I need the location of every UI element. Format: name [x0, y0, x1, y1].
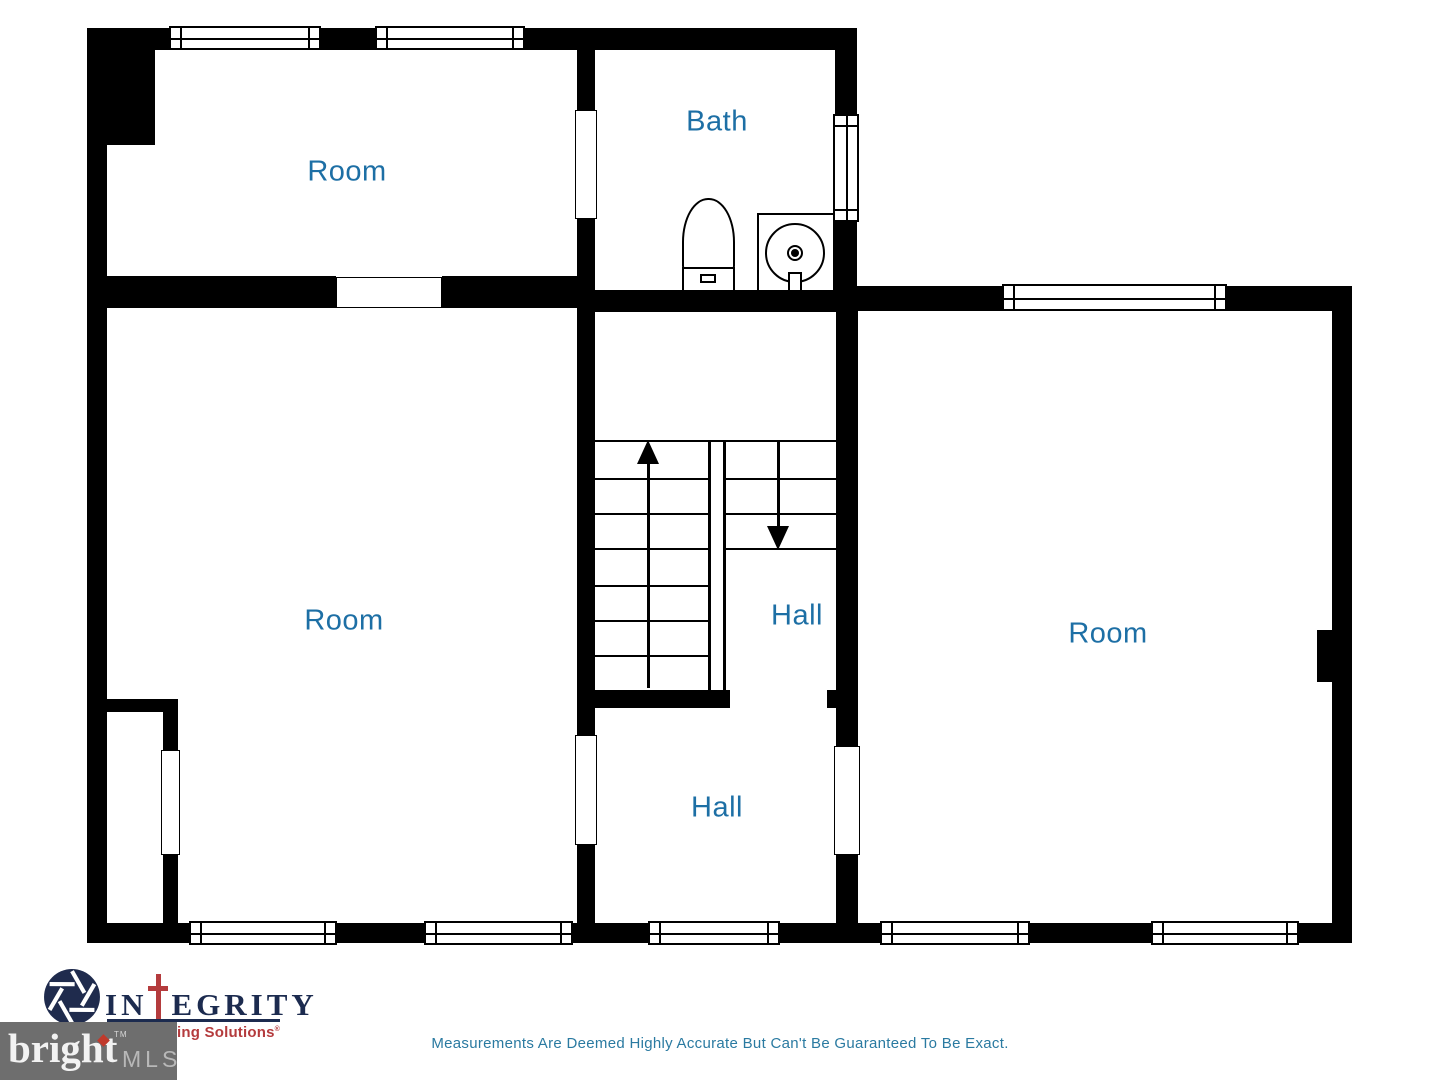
window-bottom-right-1 — [880, 921, 1030, 945]
wall-bottom-seg5 — [1030, 923, 1151, 943]
sink-faucet — [788, 272, 802, 292]
bright-brand-text: bright — [8, 1026, 117, 1071]
door-room-to-room — [336, 277, 442, 308]
stair-step-line — [595, 513, 710, 515]
wall-bottom-seg6 — [1299, 923, 1352, 943]
sink-drain-inner — [791, 249, 799, 257]
label-hall-lower: Hall — [691, 792, 743, 825]
wall-bottom-seg4 — [780, 923, 880, 943]
measurement-disclaimer: Measurements Are Deemed Highly Accurate … — [431, 1035, 1008, 1052]
integrity-cross-icon — [148, 974, 168, 1020]
stair-step-line — [595, 620, 710, 622]
stair-top-line — [595, 440, 836, 442]
wall-stairs-right-upper — [836, 312, 858, 748]
wall-bath-right-upper — [835, 28, 857, 116]
floor-plan-canvas: Room Bath Room Hall Hall Room IN EGRITY … — [0, 0, 1440, 1080]
stair-step-line — [595, 655, 710, 657]
integrity-logo: IN EGRITY — [105, 974, 318, 1020]
wall-room-bath-upper — [577, 28, 595, 112]
stair-step-line — [726, 478, 836, 480]
stairs-down-arrow-shaft — [777, 442, 780, 532]
label-bath: Bath — [686, 106, 748, 139]
door-hall-right — [834, 746, 860, 855]
integrity-aperture-icon — [43, 968, 101, 1026]
bright-mls-logo: bright TM MLS — [0, 1022, 177, 1080]
label-hall-stairs: Hall — [771, 600, 823, 633]
wall-left-outer — [87, 28, 107, 943]
wall-bottom-seg2 — [337, 923, 424, 943]
wall-closet-right-upper — [163, 699, 178, 752]
wall-closet-right-lower — [163, 853, 178, 943]
door-closet — [161, 750, 180, 855]
wall-stairs-left-upper — [577, 308, 595, 737]
stair-step-line — [595, 548, 710, 550]
stair-step-line — [595, 478, 710, 480]
window-bath-right — [833, 114, 859, 222]
wall-right-room-top-left-seg — [836, 286, 1002, 311]
wall-mid-band-left — [87, 276, 336, 308]
stair-divider-rail — [708, 440, 711, 690]
window-bottom-2 — [424, 921, 573, 945]
stair-step-line — [726, 513, 836, 515]
integrity-word-start: IN — [105, 989, 147, 1020]
window-right-room-top — [1002, 284, 1227, 311]
label-room-right: Room — [1068, 618, 1147, 651]
integrity-reg-mark: ® — [275, 1026, 280, 1033]
stairs-down-arrow-icon — [767, 526, 789, 550]
stairs-up-arrow-shaft — [647, 462, 650, 688]
window-top-1 — [169, 26, 321, 50]
label-room-middle-left: Room — [304, 605, 383, 638]
door-bath — [575, 110, 597, 219]
window-top-2 — [375, 26, 525, 50]
door-hall-left — [575, 735, 597, 845]
wall-mid-band-right — [442, 276, 577, 308]
label-room-top-left: Room — [307, 156, 386, 189]
window-bottom-hall — [648, 921, 780, 945]
opening-stairs-to-hall — [730, 691, 827, 707]
wall-right-bump — [1317, 630, 1332, 682]
bright-tm-mark: TM — [114, 1030, 128, 1039]
bright-mls-text: MLS — [122, 1046, 181, 1073]
window-bottom-1 — [189, 921, 337, 945]
wall-under-stairs — [577, 690, 730, 708]
window-bottom-right-2 — [1151, 921, 1299, 945]
stairs-up-arrow-icon — [637, 440, 659, 464]
integrity-word-end: EGRITY — [171, 989, 317, 1020]
stair-step-line — [595, 585, 710, 587]
wall-bottom-seg3 — [573, 923, 650, 943]
wall-band-under-bath — [577, 290, 858, 312]
wall-room-bath-lower — [577, 217, 595, 297]
wall-right-outer — [1332, 286, 1352, 943]
toilet-bowl — [682, 198, 735, 270]
toilet-flush-button — [700, 274, 716, 283]
wall-under-stairs-stub — [827, 690, 858, 708]
